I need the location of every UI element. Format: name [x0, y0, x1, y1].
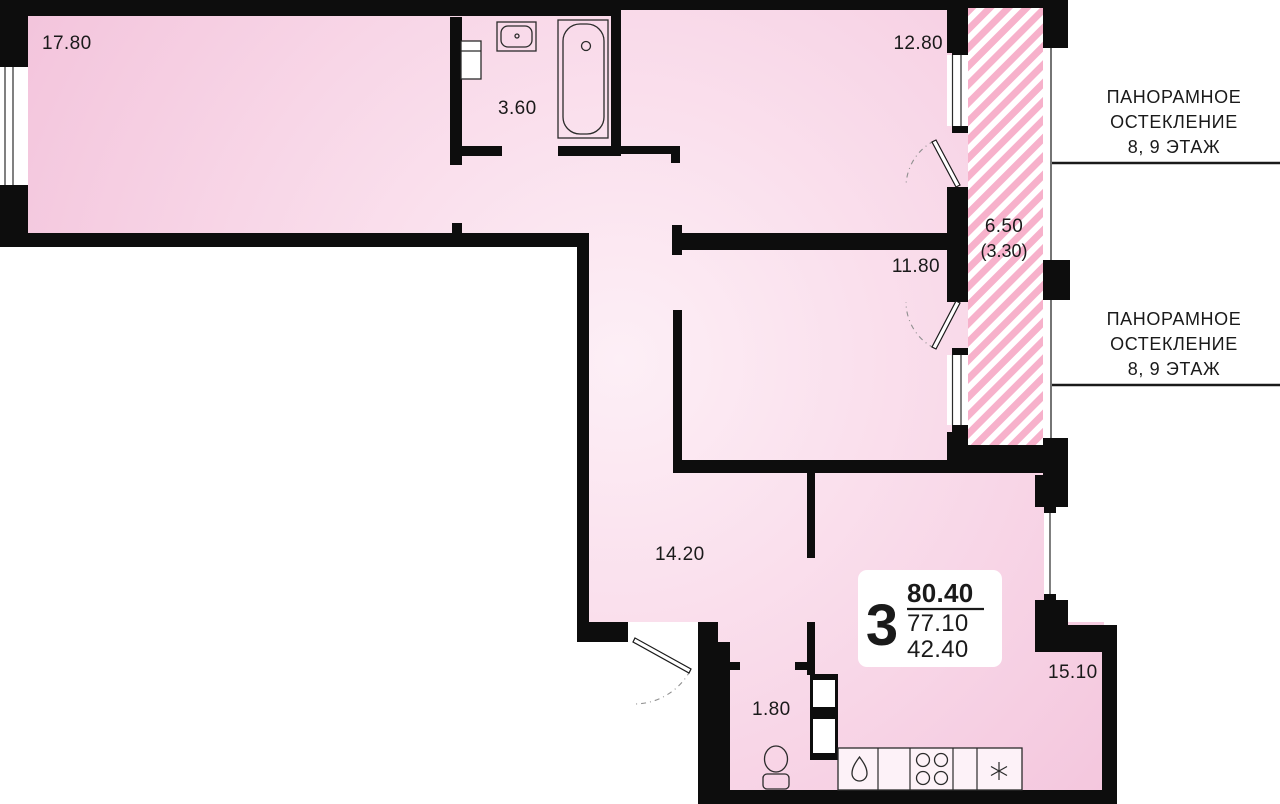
floor-plan: 17.80 3.60 12.80 11.80 14.20 1.80 15.10 …: [0, 0, 1280, 804]
window-cap: [952, 126, 968, 133]
room-area-label: 12.80: [893, 33, 943, 54]
window: [947, 355, 968, 425]
area-without-balcony: 77.10: [907, 610, 969, 637]
living-area: 42.40: [907, 636, 969, 663]
glazing-note-line: ПАНОРАМНОЕ: [1107, 309, 1242, 329]
wall-segment: [671, 146, 680, 163]
wall-segment: [698, 622, 718, 642]
glazing-note-line: ОСТЕКЛЕНИЕ: [1110, 112, 1238, 132]
window-cap: [1044, 507, 1056, 513]
wall-segment: [1102, 652, 1117, 804]
wall-segment: [0, 0, 28, 67]
wall-segment: [0, 233, 589, 247]
wall-segment: [0, 0, 621, 16]
window-cap: [12, 185, 28, 191]
window-cap: [952, 425, 968, 432]
wall-segment: [807, 622, 815, 675]
balcony-area-label: 6.50: [985, 216, 1023, 237]
wall-segment: [577, 245, 589, 642]
wall-segment: [611, 0, 621, 156]
window-cap: [952, 348, 968, 355]
room-area-label: 11.80: [892, 256, 940, 277]
wall-segment: [619, 146, 674, 154]
floor-plan-page: 17.80 3.60 12.80 11.80 14.20 1.80 15.10 …: [0, 0, 1280, 804]
wall-segment: [673, 310, 682, 473]
floor-areas: [0, 0, 1104, 790]
wall-segment: [807, 473, 815, 558]
washing-machine-icon: [461, 41, 481, 79]
rooms-count: 3: [866, 593, 898, 658]
room-area-label: 1.80: [752, 699, 791, 720]
wall-segment: [698, 790, 1117, 804]
wall-segment: [452, 223, 462, 235]
wall-segment: [1035, 475, 1068, 507]
wall-segment: [947, 0, 968, 53]
glazing-note-line: 8, 9 ЭТАЖ: [1128, 137, 1220, 157]
wall-segment: [458, 146, 502, 156]
glazing-note-line: ПАНОРАМНОЕ: [1107, 87, 1242, 107]
wall-segment: [1053, 625, 1117, 652]
wall-segment: [675, 233, 947, 250]
wall-segment: [615, 0, 947, 10]
glazing-note-line: 8, 9 ЭТАЖ: [1128, 359, 1220, 379]
wall-segment: [718, 662, 740, 670]
room-area-label: 17.80: [42, 33, 92, 54]
apartment-summary: 3 80.40 77.10 42.40: [858, 570, 1002, 667]
room-area-label: 15.10: [1048, 662, 1098, 683]
total-area: 80.40: [907, 578, 974, 608]
wall-segment: [558, 146, 619, 156]
wall-segment: [968, 0, 1043, 8]
window-cap: [12, 61, 28, 67]
wall-segment: [450, 17, 462, 165]
wall-segment: [1043, 260, 1070, 300]
window-cap: [1044, 594, 1056, 600]
glazing-note-bottom: ПАНОРАМНОЕ ОСТЕКЛЕНИЕ 8, 9 ЭТАЖ: [1052, 309, 1280, 385]
window: [0, 67, 28, 185]
wall-segment: [673, 460, 947, 473]
floor-area: [589, 245, 815, 622]
balcony-area-coefficient-label: (3.30): [980, 241, 1027, 261]
window-cap: [952, 48, 968, 55]
entrance-door-leaf: [633, 638, 691, 673]
window: [947, 55, 968, 126]
wall-segment: [577, 622, 628, 642]
room-area-label: 14.20: [655, 544, 705, 565]
floor-area: [0, 0, 968, 247]
duct-shaft: [810, 674, 838, 760]
glazing-note-top: ПАНОРАМНОЕ ОСТЕКЛЕНИЕ 8, 9 ЭТАЖ: [1052, 87, 1280, 163]
wall-segment: [795, 662, 807, 670]
wall-segment: [1043, 438, 1068, 475]
wall-segment: [947, 187, 968, 302]
glazing-note-line: ОСТЕКЛЕНИЕ: [1110, 334, 1238, 354]
room-area-label: 3.60: [498, 98, 537, 119]
entrance-door-arc: [634, 671, 690, 704]
wall-segment: [958, 445, 1043, 473]
wall-segment: [1043, 0, 1068, 48]
